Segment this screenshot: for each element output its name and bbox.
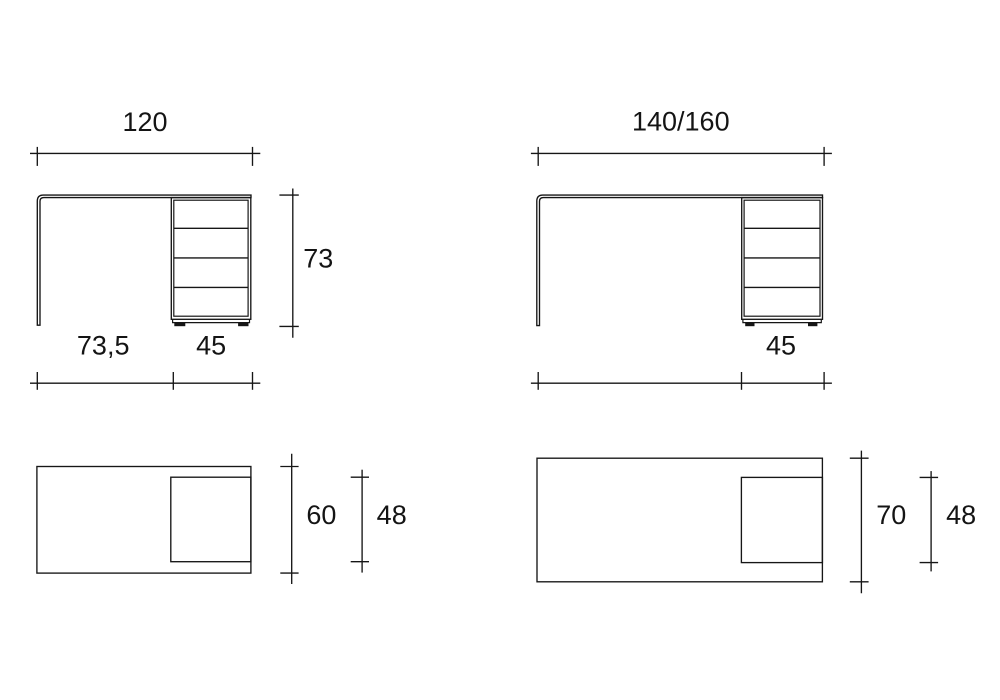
- svg-text:48: 48: [946, 500, 976, 530]
- svg-text:45: 45: [766, 331, 796, 361]
- svg-text:70: 70: [876, 500, 906, 530]
- svg-text:60: 60: [306, 500, 336, 530]
- svg-text:48: 48: [377, 500, 407, 530]
- svg-text:45: 45: [196, 331, 226, 361]
- svg-text:73,5: 73,5: [77, 331, 130, 361]
- svg-text:140/160: 140/160: [632, 106, 730, 136]
- svg-text:73: 73: [303, 244, 333, 274]
- svg-text:120: 120: [122, 107, 167, 137]
